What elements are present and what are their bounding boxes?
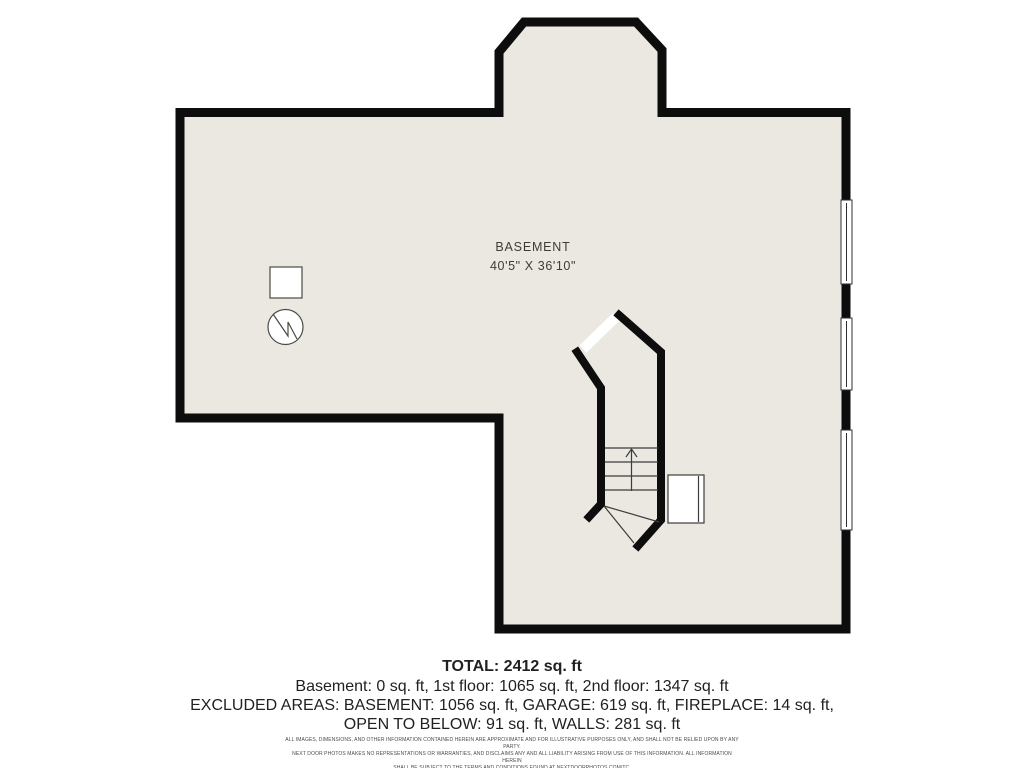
utility-square-symbol xyxy=(270,267,302,298)
window-middle-icon xyxy=(841,318,852,390)
stair-landing-rectangle xyxy=(668,475,704,523)
total-sqft: TOTAL: 2412 sq. ft xyxy=(0,656,1024,677)
square-footage-summary: TOTAL: 2412 sq. ft Basement: 0 sq. ft, 1… xyxy=(0,656,1024,734)
legal-disclaimer: ALL IMAGES, DIMENSIONS, AND OTHER INFORM… xyxy=(282,737,742,768)
excluded-areas-line2: OPEN TO BELOW: 91 sq. ft, WALLS: 281 sq.… xyxy=(0,715,1024,734)
disclaimer-line2: NEXT DOOR PHOTOS MAKES NO REPRESENTATION… xyxy=(282,751,742,765)
floor-plan-drawing xyxy=(0,0,1024,768)
windows xyxy=(841,200,852,530)
room-dimensions: 40'5" X 36'10" xyxy=(433,259,633,273)
room-label: BASEMENT xyxy=(433,240,633,254)
water-heater-symbol xyxy=(268,310,303,345)
disclaimer-line1: ALL IMAGES, DIMENSIONS, AND OTHER INFORM… xyxy=(282,737,742,751)
window-top-icon xyxy=(841,200,852,284)
floor-sqft-breakdown: Basement: 0 sq. ft, 1st floor: 1065 sq. … xyxy=(0,677,1024,696)
floor-plan-page: BASEMENT 40'5" X 36'10" TOTAL: 2412 sq. … xyxy=(0,0,1024,768)
excluded-areas-line1: EXCLUDED AREAS: BASEMENT: 1056 sq. ft, G… xyxy=(0,696,1024,715)
window-bottom-icon xyxy=(841,430,852,530)
